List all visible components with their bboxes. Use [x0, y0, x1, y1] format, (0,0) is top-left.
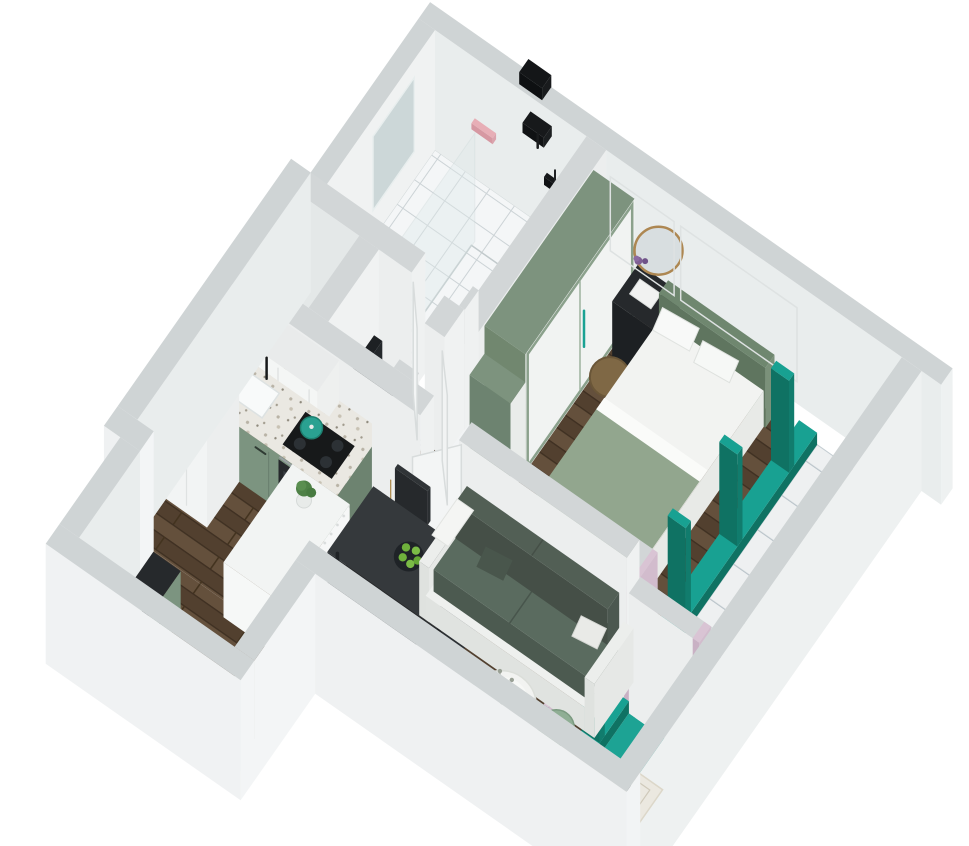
sprig-tip-1	[498, 669, 502, 673]
burner-4	[320, 456, 332, 468]
basil-plant-2	[296, 481, 306, 491]
apple-4	[399, 553, 407, 561]
burner-3	[294, 438, 306, 450]
pot-lid-knob	[309, 425, 313, 429]
apple-5	[406, 560, 414, 568]
vase-flower-2	[634, 256, 640, 262]
basil-plant-3	[306, 488, 316, 498]
burner-2	[332, 440, 344, 452]
floorplan-3d-render	[0, 0, 969, 846]
window-post-1	[771, 361, 794, 473]
apple-1	[402, 543, 410, 551]
vase-flower-3	[642, 258, 648, 264]
wall-mirror	[635, 227, 683, 275]
window-post-2	[719, 435, 742, 547]
apple-2	[412, 547, 420, 555]
floorplan-page	[0, 0, 969, 846]
